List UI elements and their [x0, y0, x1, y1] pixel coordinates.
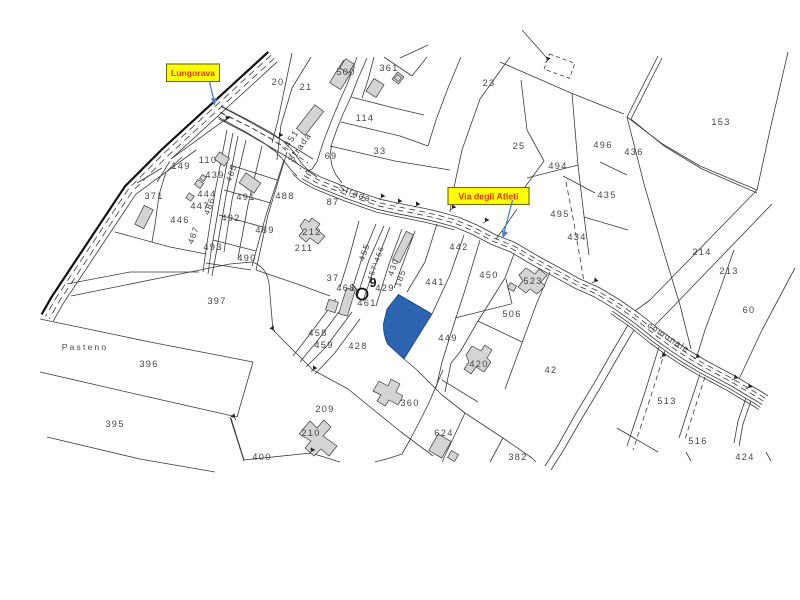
- svg-text:495: 495: [550, 209, 569, 219]
- svg-text:Pasteno: Pasteno: [62, 342, 109, 352]
- svg-text:361: 361: [379, 63, 398, 73]
- svg-text:492: 492: [221, 213, 240, 223]
- svg-text:435: 435: [597, 190, 616, 200]
- svg-text:436: 436: [624, 147, 643, 157]
- svg-text:214: 214: [692, 247, 711, 257]
- svg-text:491: 491: [236, 192, 255, 202]
- svg-text:441: 441: [425, 277, 444, 287]
- svg-text:153: 153: [711, 117, 730, 127]
- svg-text:114: 114: [356, 113, 375, 123]
- svg-text:396: 396: [139, 359, 158, 369]
- svg-text:25: 25: [513, 141, 526, 151]
- svg-text:489: 489: [255, 225, 274, 235]
- svg-text:493: 493: [203, 242, 222, 252]
- svg-text:468: 468: [336, 283, 355, 293]
- svg-text:20: 20: [272, 77, 285, 87]
- svg-text:210: 210: [301, 428, 320, 438]
- svg-text:494: 494: [548, 161, 567, 171]
- svg-text:523: 523: [523, 276, 542, 286]
- svg-text:371: 371: [144, 191, 163, 201]
- svg-text:439: 439: [205, 170, 224, 180]
- svg-text:461: 461: [357, 298, 376, 308]
- svg-text:209: 209: [315, 404, 334, 414]
- svg-text:496: 496: [593, 140, 612, 150]
- svg-text:69: 69: [325, 151, 338, 161]
- svg-text:500: 500: [336, 67, 355, 77]
- svg-text:516: 516: [688, 436, 707, 446]
- svg-text:488: 488: [275, 191, 294, 201]
- svg-text:506: 506: [502, 309, 521, 319]
- svg-text:428: 428: [348, 341, 367, 351]
- svg-text:624: 624: [434, 428, 453, 438]
- svg-text:450: 450: [479, 270, 498, 280]
- svg-text:442: 442: [449, 242, 468, 252]
- svg-text:213: 213: [719, 266, 738, 276]
- svg-text:110: 110: [199, 155, 218, 165]
- svg-text:446: 446: [170, 215, 189, 225]
- svg-text:37: 37: [327, 273, 340, 283]
- svg-text:420: 420: [469, 359, 488, 369]
- svg-text:459: 459: [314, 340, 333, 350]
- svg-text:397: 397: [207, 296, 226, 306]
- svg-text:33: 33: [374, 146, 387, 156]
- svg-text:149: 149: [171, 161, 190, 171]
- svg-text:490: 490: [237, 253, 256, 263]
- svg-text:Via degli Atleti: Via degli Atleti: [458, 192, 518, 202]
- svg-text:360: 360: [400, 398, 419, 408]
- svg-text:434: 434: [567, 232, 586, 242]
- svg-text:424: 424: [735, 452, 754, 462]
- svg-text:449: 449: [438, 333, 457, 343]
- svg-text:513: 513: [657, 396, 676, 406]
- svg-text:211: 211: [295, 243, 314, 253]
- svg-text:382: 382: [508, 452, 527, 462]
- svg-text:Lungorava: Lungorava: [171, 68, 215, 78]
- svg-text:212: 212: [302, 227, 321, 237]
- svg-text:23: 23: [483, 78, 496, 88]
- svg-text:42: 42: [545, 365, 558, 375]
- svg-text:60: 60: [743, 305, 756, 315]
- svg-text:395: 395: [105, 419, 124, 429]
- svg-text:400: 400: [252, 452, 271, 462]
- svg-text:87: 87: [327, 197, 340, 207]
- svg-text:21: 21: [300, 82, 313, 92]
- svg-text:458: 458: [308, 328, 327, 338]
